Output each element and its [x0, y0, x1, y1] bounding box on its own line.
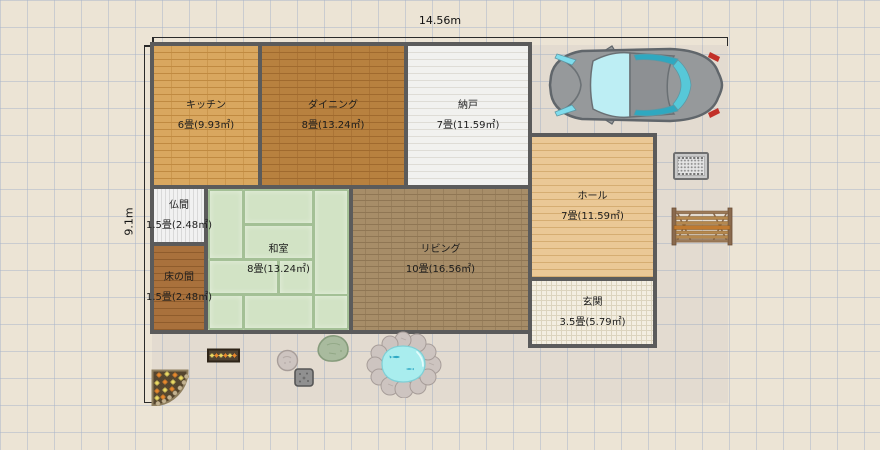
stepping-stone-icon[interactable] — [294, 368, 314, 387]
room-size: 8畳(13.24㎡) — [247, 265, 310, 275]
room-size: 8畳(13.24㎡) — [302, 121, 365, 131]
tatami-mat — [313, 189, 349, 296]
moss-rock-icon[interactable] — [315, 333, 350, 364]
flower-bed-icon[interactable] — [151, 369, 190, 406]
bench-icon[interactable] — [671, 205, 733, 248]
room-washitsu[interactable]: 和室 8畳(13.24㎡) — [204, 185, 353, 334]
tatami-mat — [208, 294, 244, 330]
room-name: ダイニング — [308, 101, 358, 111]
room-size: 3.5畳(5.79㎡) — [560, 318, 626, 328]
room-living[interactable]: リビング 10畳(16.56㎡) — [349, 185, 532, 334]
tatami-mat — [208, 189, 244, 260]
room-dining[interactable]: ダイニング 8畳(13.24㎡) — [258, 42, 408, 189]
room-name: 床の間 — [164, 273, 194, 283]
floorplan-canvas[interactable]: 14.56m 9.1m キッチン 6畳(9.93㎡) ダイニング 8畳(13.2… — [0, 0, 880, 450]
room-size: 6畳(9.93㎡) — [178, 121, 234, 131]
room-size: 1.5畳(2.48㎡) — [146, 221, 212, 231]
room-size: 7畳(11.59㎡) — [437, 121, 500, 131]
room-name: 納戸 — [458, 101, 478, 111]
width-dimension-label: 14.56m — [152, 14, 728, 27]
car-icon[interactable] — [546, 45, 726, 125]
tatami-mat — [243, 189, 314, 225]
room-size: 1.5畳(2.48㎡) — [146, 293, 212, 303]
room-name: ホール — [578, 192, 608, 202]
room-name: 玄関 — [583, 298, 603, 308]
room-size: 7畳(11.59㎡) — [561, 212, 624, 222]
pond-icon[interactable] — [365, 331, 442, 398]
flower-planter-icon[interactable] — [207, 348, 240, 363]
room-butsuma[interactable]: 仏間 1.5畳(2.48㎡) — [150, 185, 208, 246]
room-name: リビング — [421, 245, 461, 255]
room-name: 仏間 — [169, 201, 189, 211]
tatami-mat — [243, 294, 314, 330]
room-tokonoma[interactable]: 床の間 1.5畳(2.48㎡) — [150, 242, 208, 334]
room-name: キッチン — [186, 101, 226, 111]
room-kitchen[interactable]: キッチン 6畳(9.93㎡) — [150, 42, 262, 189]
room-name: 和室 — [269, 245, 289, 255]
tatami-mat — [243, 224, 314, 260]
room-storage[interactable]: 納戸 7畳(11.59㎡) — [404, 42, 532, 189]
room-genkan[interactable]: 玄関 3.5畳(5.79㎡) — [528, 277, 657, 348]
tatami-mat — [313, 294, 349, 330]
dimension-tick — [727, 37, 729, 46]
height-dimension-label: 9.1m — [123, 192, 136, 252]
room-hall[interactable]: ホール 7畳(11.59㎡) — [528, 133, 657, 281]
doormat-icon[interactable] — [673, 152, 709, 180]
room-size: 10畳(16.56㎡) — [406, 265, 475, 275]
